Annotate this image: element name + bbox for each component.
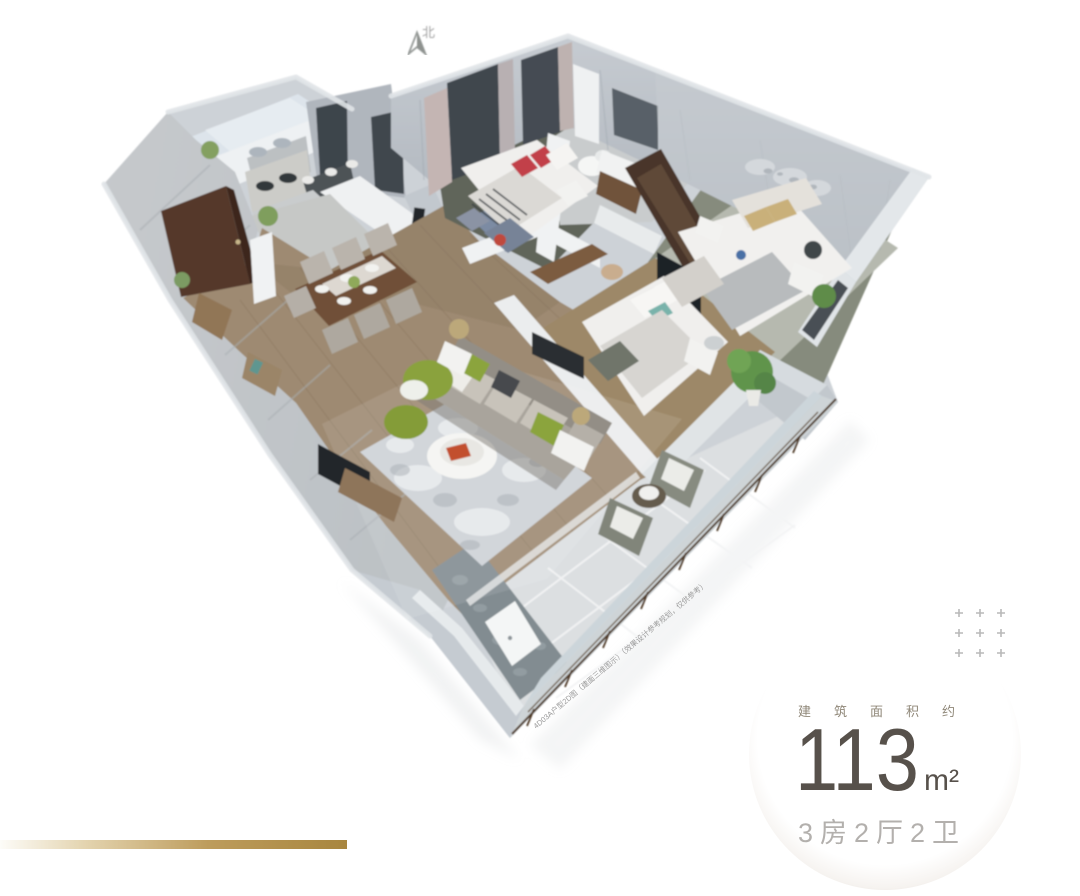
svg-text:北: 北	[422, 25, 435, 40]
svg-text:113: 113	[795, 710, 919, 809]
svg-text:3房2厅2卫: 3房2厅2卫	[798, 818, 966, 848]
svg-text:m²: m²	[924, 764, 959, 797]
